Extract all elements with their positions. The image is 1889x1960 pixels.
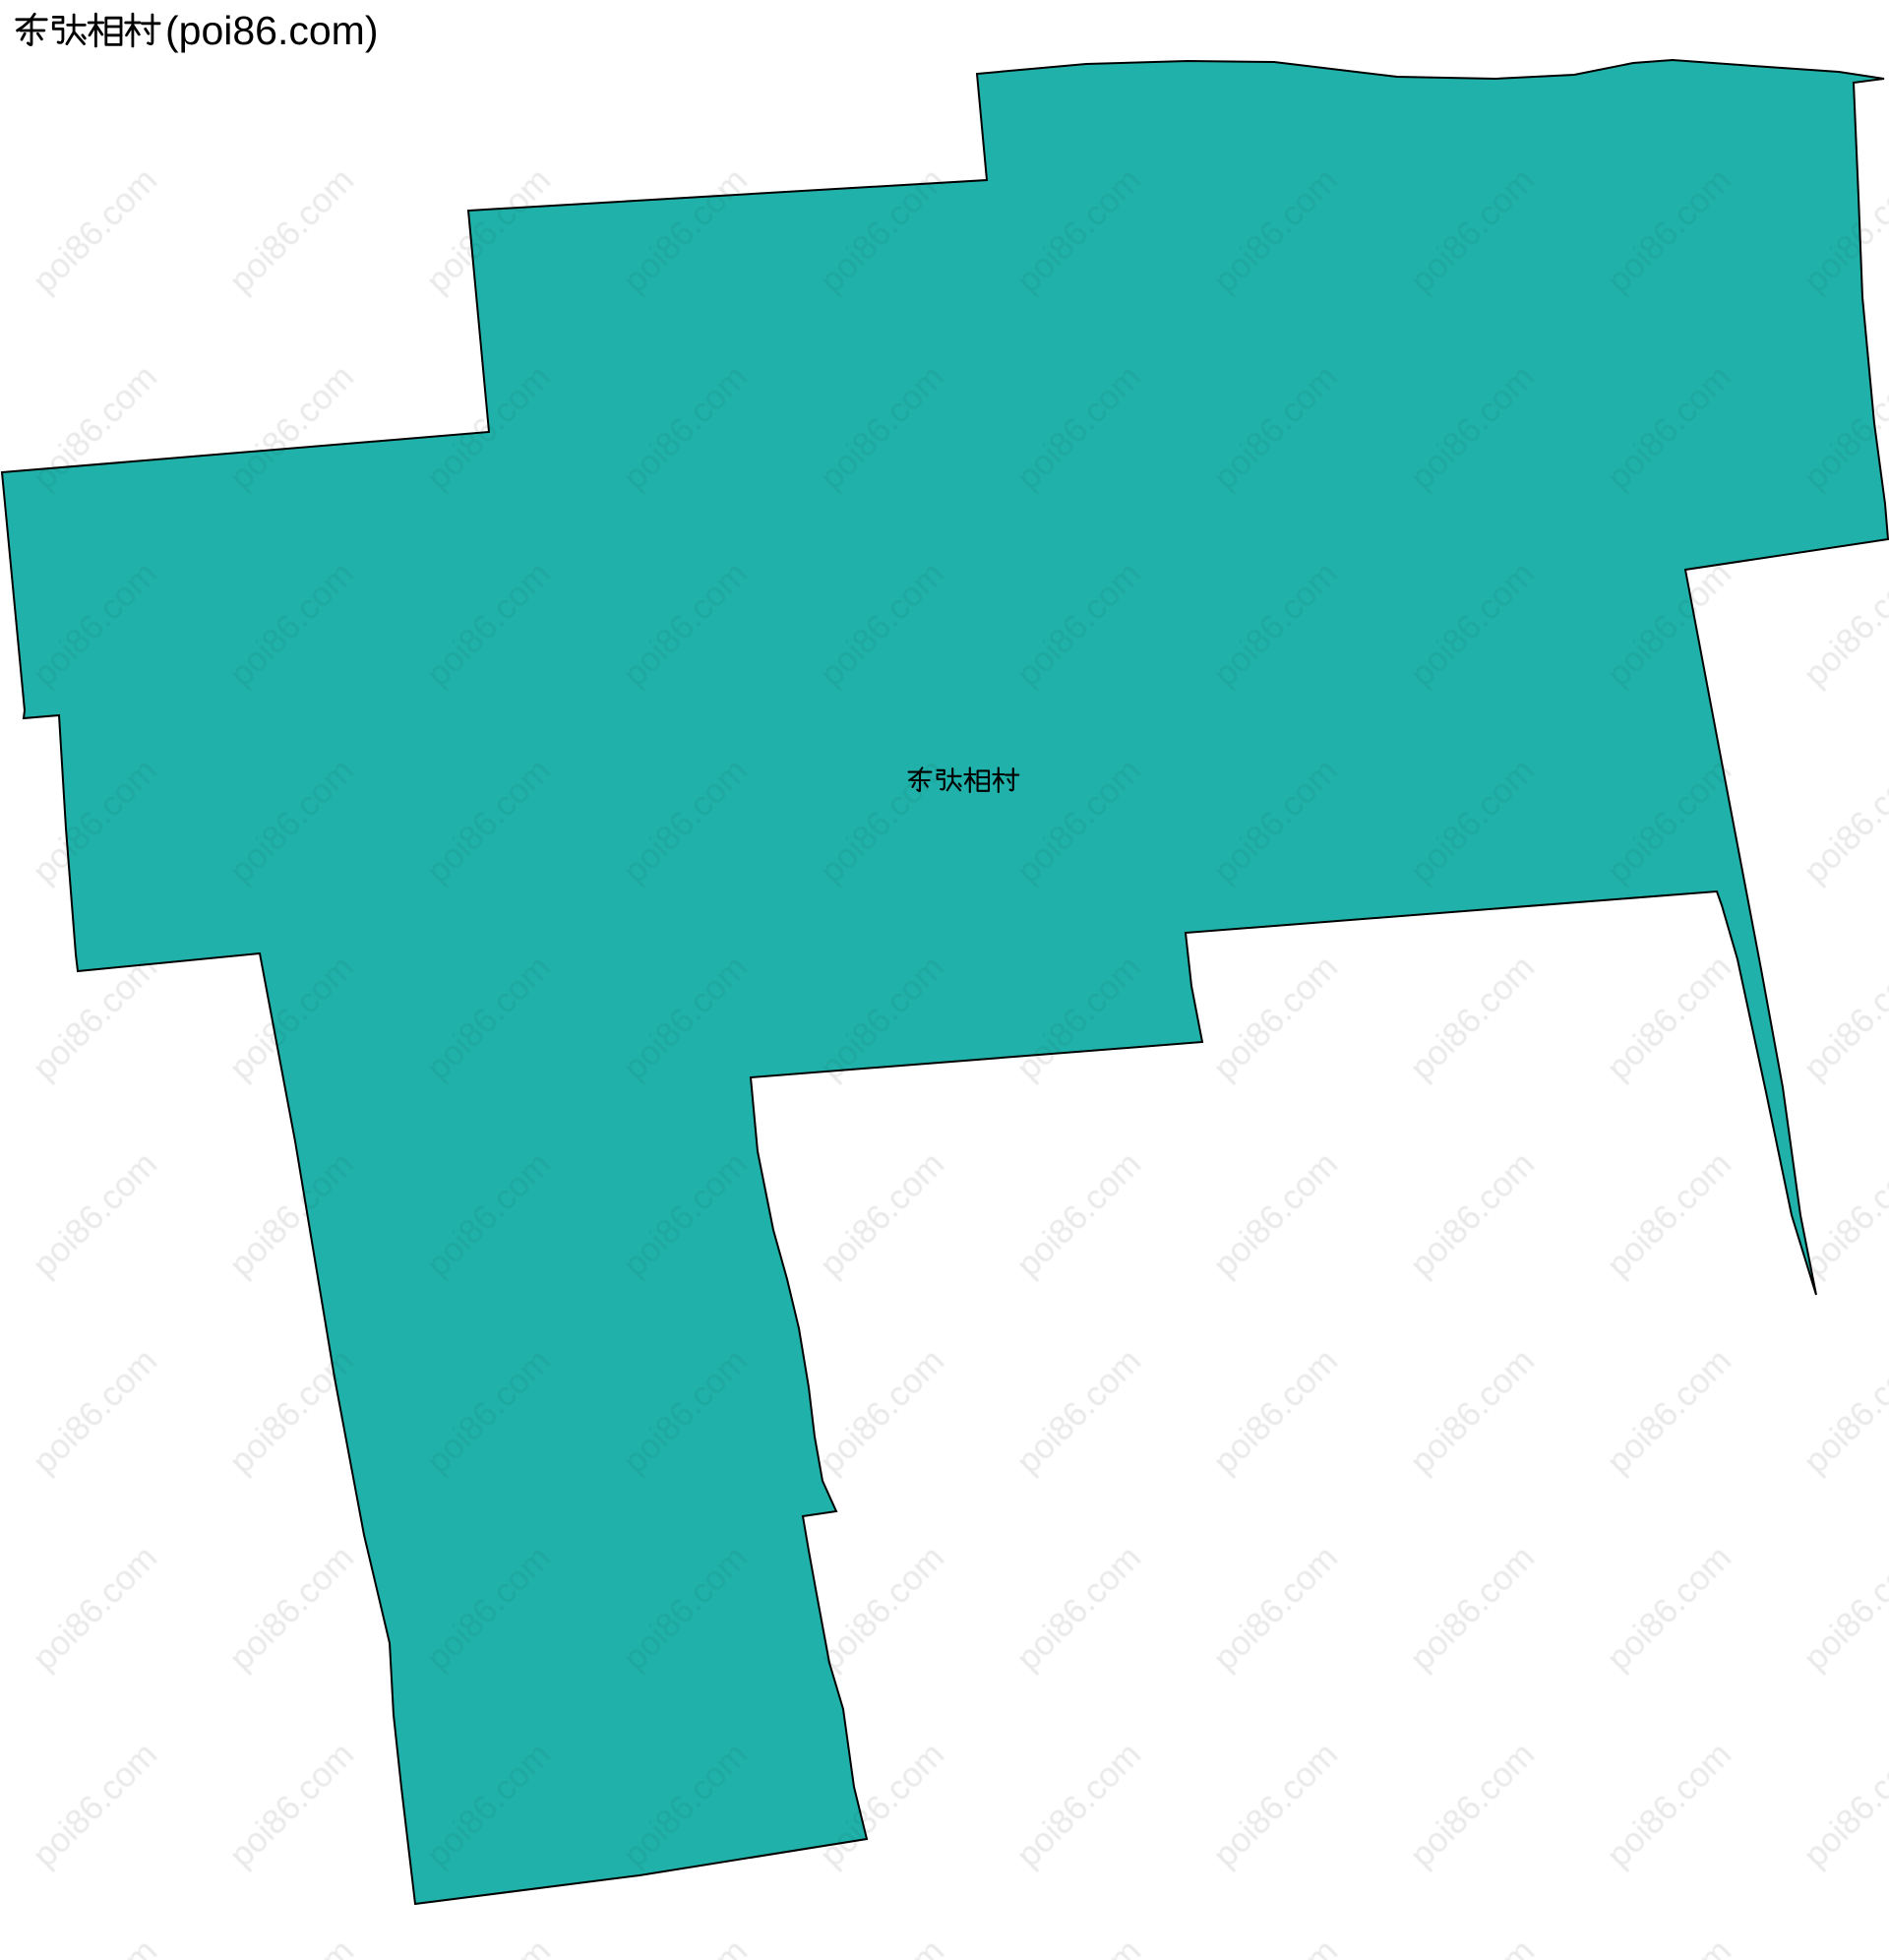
svg-text:(poi86.com): (poi86.com) xyxy=(165,8,378,53)
